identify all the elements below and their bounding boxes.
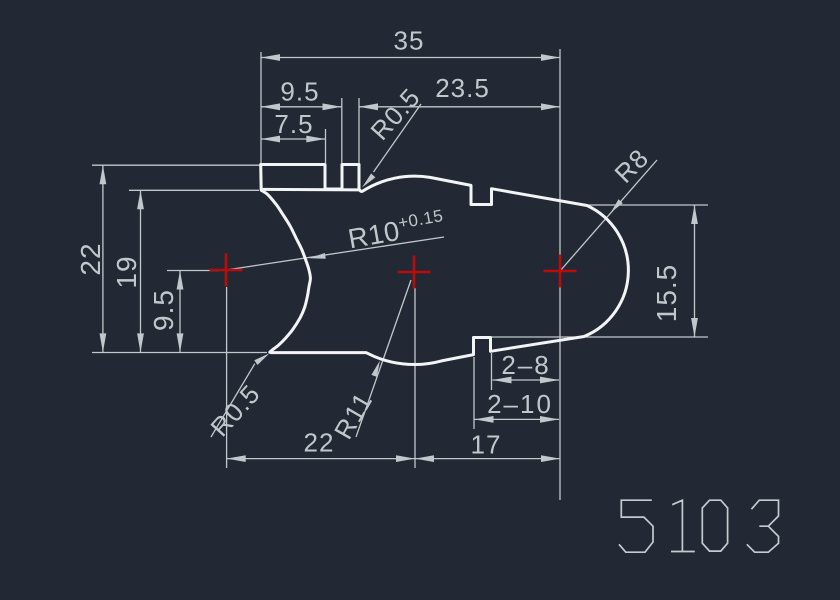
svg-text:19: 19 — [111, 255, 142, 288]
svg-text:9.5: 9.5 — [148, 289, 179, 331]
svg-text:23.5: 23.5 — [435, 73, 490, 103]
svg-text:2–10: 2–10 — [487, 389, 553, 419]
svg-text:2–8: 2–8 — [501, 350, 550, 380]
svg-text:35: 35 — [394, 25, 425, 55]
svg-text:17: 17 — [471, 430, 502, 460]
svg-text:9.5: 9.5 — [280, 76, 319, 106]
svg-text:7.5: 7.5 — [274, 109, 313, 139]
svg-text:22: 22 — [304, 428, 335, 458]
svg-text:15.5: 15.5 — [651, 264, 682, 323]
svg-text:22: 22 — [75, 242, 106, 275]
